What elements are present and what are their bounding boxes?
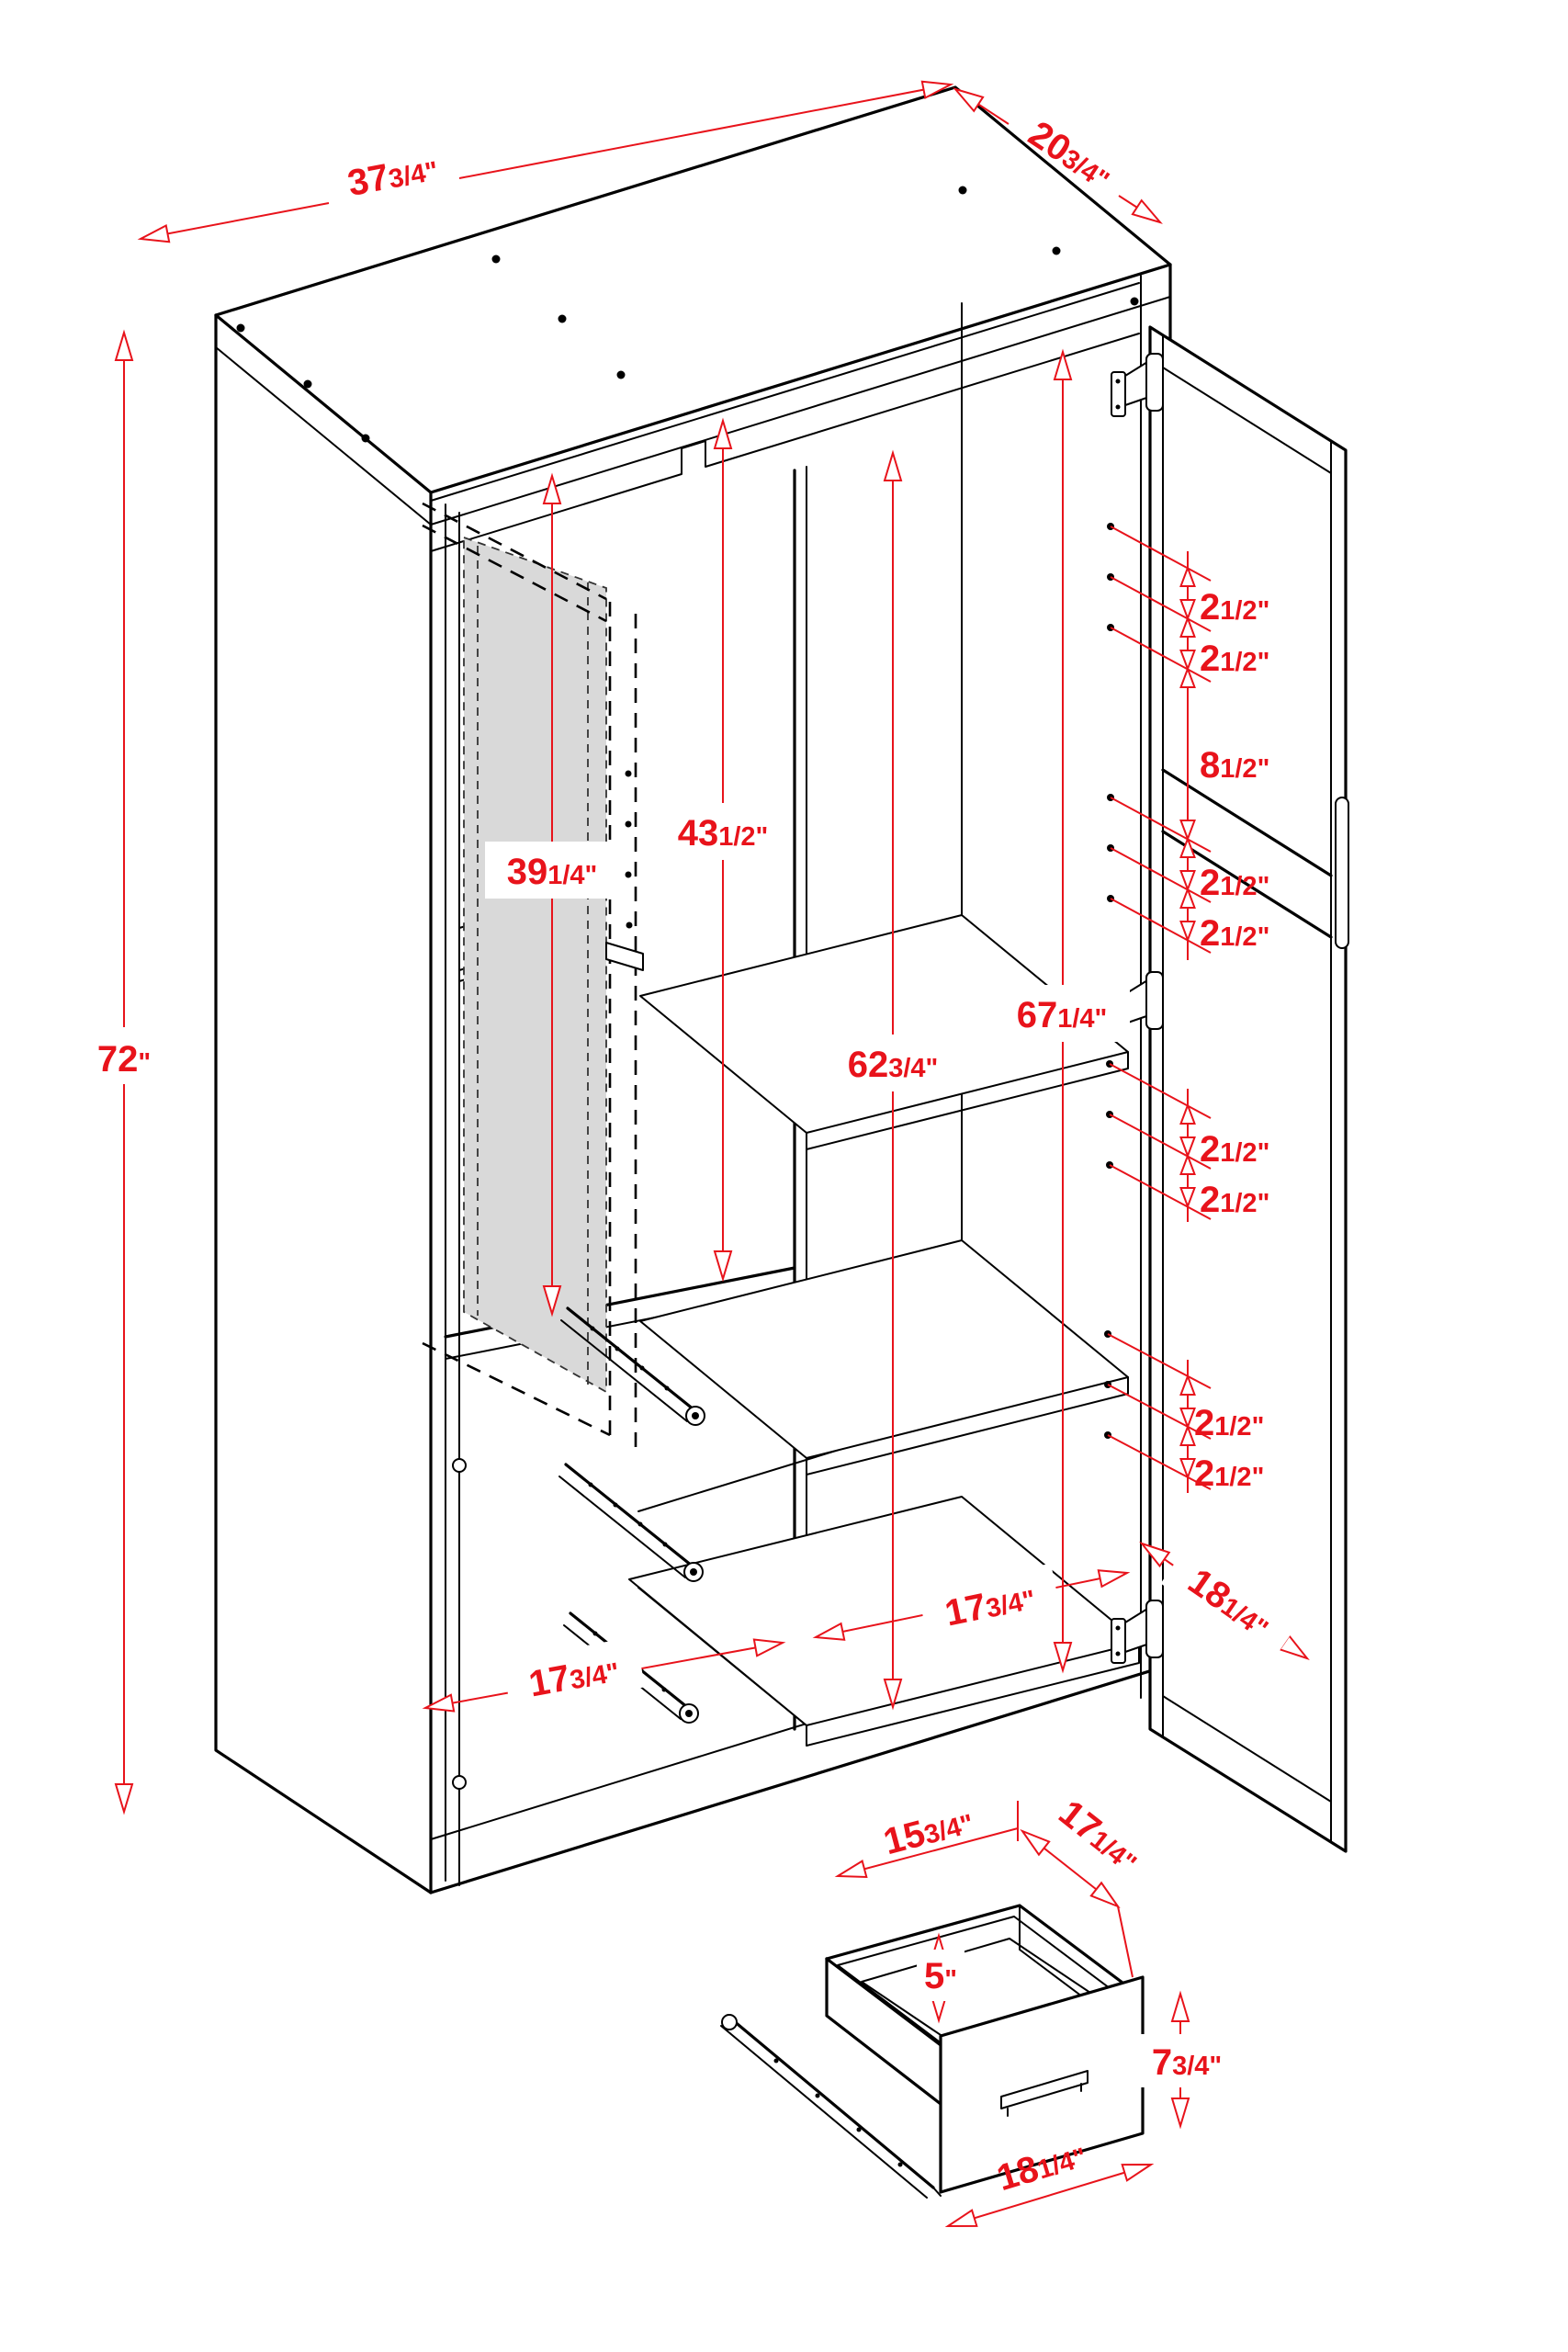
svg-text:171/4": 171/4" xyxy=(1051,1792,1147,1881)
top-rail xyxy=(431,283,1139,551)
top-panel-holes xyxy=(237,187,1139,443)
svg-text:153/4": 153/4" xyxy=(879,1801,977,1863)
drawer-slide-rail xyxy=(721,2015,941,2198)
dim-cabinet-depth: 203/4" xyxy=(951,82,1165,229)
right-shelf-lower xyxy=(640,1240,1128,1475)
drawer-slide-2 xyxy=(559,1464,703,1581)
door-handle xyxy=(1336,797,1348,948)
door-hinge-top xyxy=(1111,354,1163,416)
dim-cabinet-height: 72" xyxy=(90,333,158,1812)
cabinet-left-panel xyxy=(216,315,431,1893)
dim-drawer-front-height: 73/4" xyxy=(1126,1994,1249,2126)
wardrobe-dimension-diagram: 373/4" 203/4" 72" 391/4" xyxy=(0,0,1568,2352)
svg-text:203/4": 203/4" xyxy=(1021,114,1119,198)
dim-right-interior-height: 671/4" xyxy=(994,352,1130,1670)
dim-left-interior-height: 431/2" xyxy=(656,421,790,1279)
dim-drawer-depth: 171/4" xyxy=(1017,1792,1147,1977)
diagram-canvas: 373/4" 203/4" 72" 391/4" xyxy=(0,0,1568,2352)
dim-drawer-interior-height: 5" xyxy=(917,1936,964,2020)
dim-cabinet-width: 373/4" xyxy=(139,76,952,247)
door-hinge-bottom xyxy=(1111,1600,1163,1663)
mirror-door-handle xyxy=(606,943,643,970)
mirror-door-phantom xyxy=(423,503,643,1447)
svg-text:373/4": 373/4" xyxy=(344,147,441,204)
shelf-pin-holes xyxy=(1104,523,1114,1439)
dim-drawer-interior-width: 153/4" xyxy=(836,1801,1018,1884)
mirror-panel xyxy=(464,537,606,1392)
divider-pin-holes xyxy=(626,771,633,929)
